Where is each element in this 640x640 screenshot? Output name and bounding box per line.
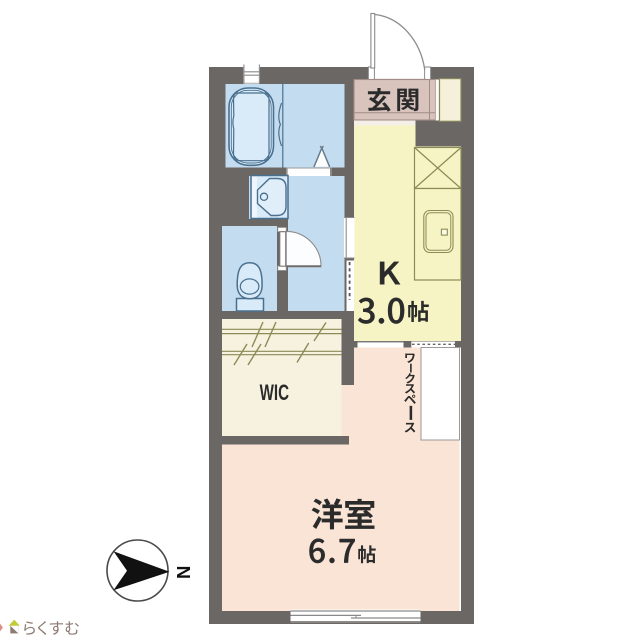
svg-text:WIC: WIC bbox=[260, 380, 289, 405]
svg-text:N: N bbox=[173, 566, 194, 579]
